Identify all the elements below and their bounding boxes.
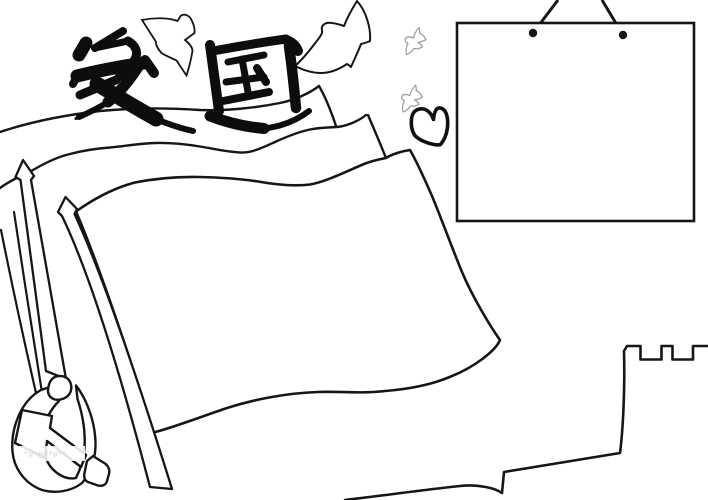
svg-text:*#*##*#**: *#*##*#**	[24, 450, 66, 461]
